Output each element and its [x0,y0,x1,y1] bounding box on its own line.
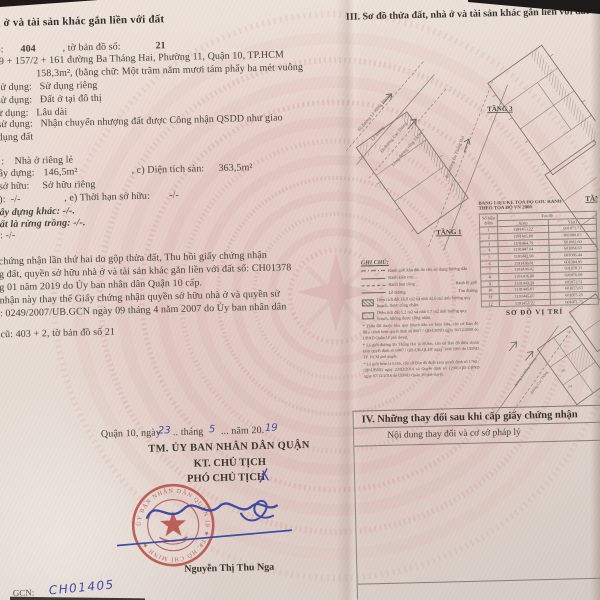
floor-label-tang3: TẦNG 3 [487,105,513,114]
legend-item: Tim đường [458,287,478,293]
map-street-label-2: đường Cao Thắng [529,370,549,395]
section-iv-block: IV. Những thay đổi sau khi cấp giấy chứn… [352,405,600,600]
map-street-label-1: đường Lê Hồng Phong [514,357,538,388]
legend-item: Diện tích đất 1,2 m2 và nhà 5,7 m2 ảnh h… [377,307,478,321]
parcel-number-2: 24 [568,384,572,388]
legend-item: Lề đường [389,289,406,295]
legend-item: Ranh kiến trúc [388,274,414,280]
certificate-photo: à ở và tài sản khác gắn liền với đất ố: … [0,0,600,600]
coordinate-table-block: BẢNG LIỆT KÊ TỌA ĐỘ GÓC RANH THEO TỌA ĐỘ… [478,199,599,308]
legend-symbol-hatch-dark [362,299,374,306]
legend-symbol-balcony [361,285,385,287]
coordinate-table: Số hiệuđiểm Tọa độ X(m) Y(m) 11191453.22… [479,211,599,308]
legend-item: Ranh lộ giới [455,280,477,286]
legend-block: GHI CHÚ: Ranh giới khu đất do chủ sử dụn… [361,258,480,379]
legend-symbol-curb [362,292,386,294]
section-iv-bottom-rule [358,578,600,585]
legend-item: Diện tích đất 16,8 m2 và nhà 42,6 m2 ảnh… [377,295,478,309]
legend-symbol-hatch-light [362,312,374,319]
legend-item: Ranh ban công [388,282,414,288]
location-map-title: SƠ ĐỒ VỊ TRÍ [506,308,563,317]
legend-symbol-architecture [361,277,385,279]
floor-label-tang1: TẦNG 1 [436,228,462,237]
parcel-number-1: 26 [562,369,566,373]
legend-note-3: * Lộ giới hẻm là 6,0m, căn cứ Bản đồ đín… [363,359,479,379]
legend-note-2: * Lộ giới đường Ba Tháng Hai là 30,0m, c… [363,340,479,360]
legend-note-1: * Thửa đất thuộc khu quy hoạch dân cư hi… [362,321,478,341]
floor-plan-tang1 [353,109,471,236]
legend-symbol-boundary [361,270,385,272]
